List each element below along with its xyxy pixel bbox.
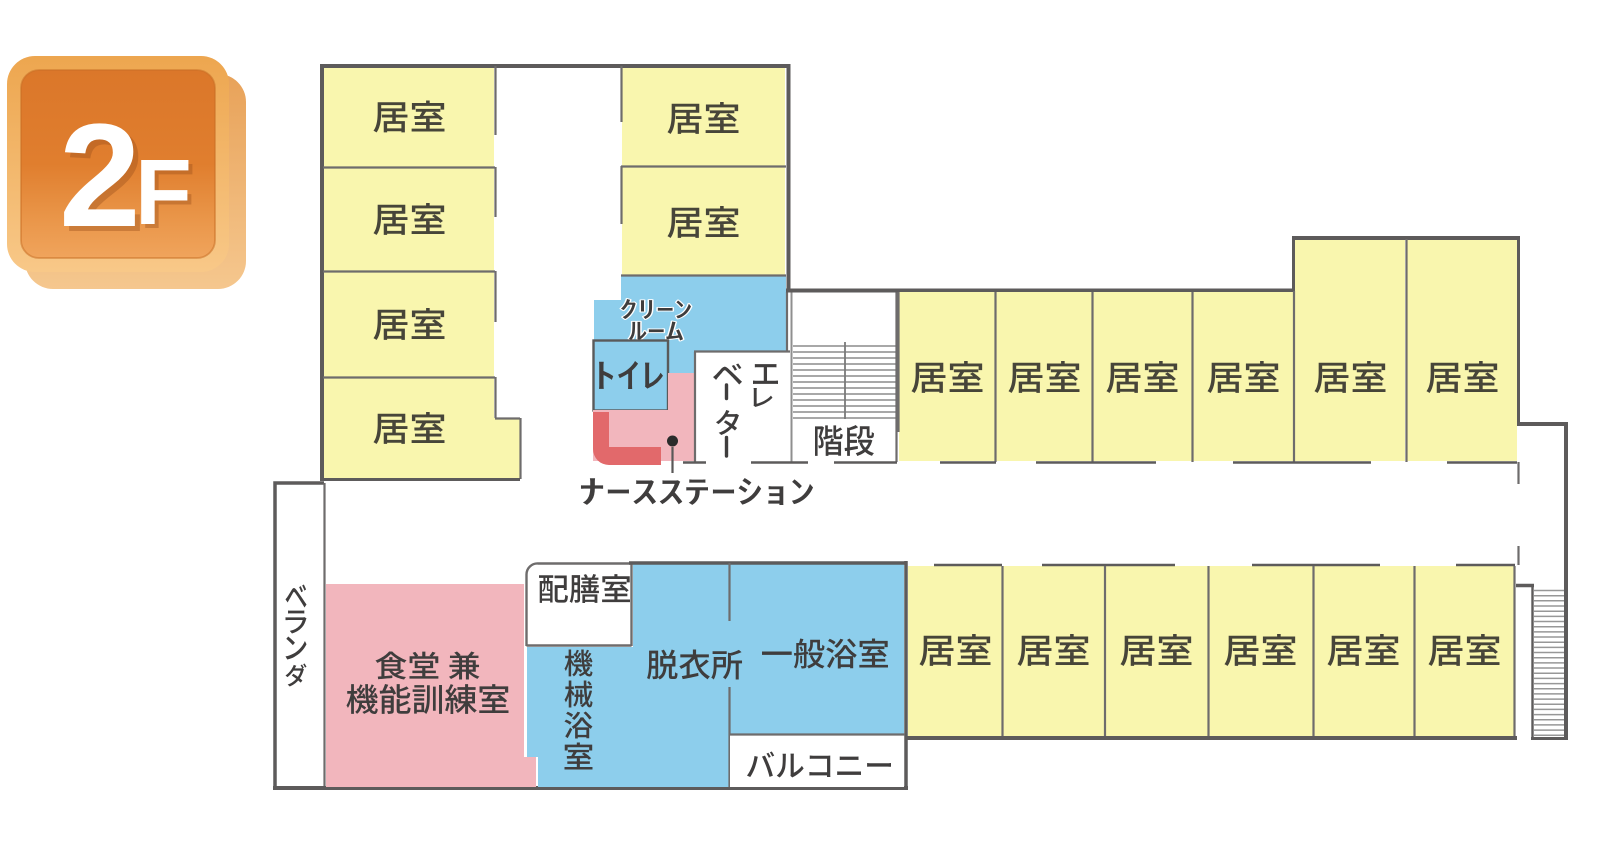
svg-text:F: F	[135, 140, 192, 244]
svg-text:2: 2	[59, 94, 141, 258]
